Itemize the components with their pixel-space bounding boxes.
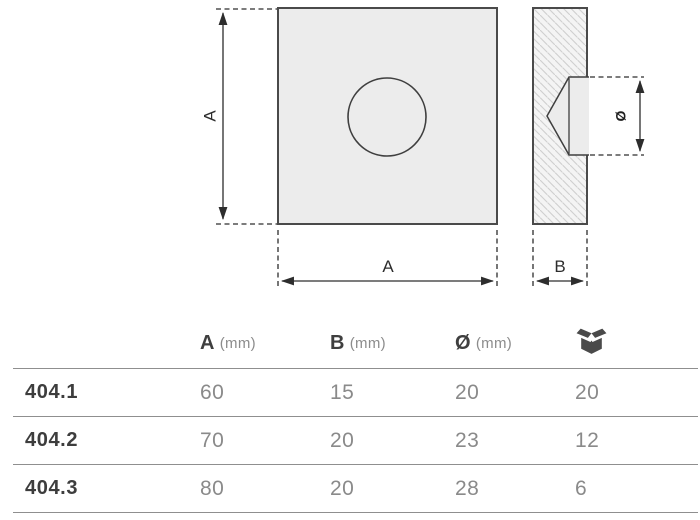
row-model: 404.3	[13, 465, 200, 513]
header-col-diameter: Ø (mm)	[455, 318, 575, 369]
height-label: A	[200, 110, 219, 122]
dimension-thickness-B: B	[533, 230, 587, 287]
dimension-diameter: Ø	[590, 77, 644, 155]
header-col-packaging	[575, 318, 698, 369]
header-col-b: B (mm)	[330, 318, 455, 369]
row-pack-qty: 12	[575, 417, 698, 465]
row-diameter: 20	[455, 369, 575, 417]
row-a-mm: 60	[200, 369, 330, 417]
row-a-mm: 80	[200, 465, 330, 513]
header-model-empty	[13, 318, 200, 369]
col-a-unit: (mm)	[220, 335, 256, 352]
col-b-symbol: B	[330, 332, 345, 355]
row-pack-qty: 20	[575, 369, 698, 417]
col-a-symbol: A	[200, 332, 215, 355]
row-b-mm: 15	[330, 369, 455, 417]
col-diameter-symbol: Ø	[455, 332, 471, 355]
col-diameter-unit: (mm)	[476, 335, 512, 352]
row-model: 404.1	[13, 369, 200, 417]
width-label: A	[382, 257, 394, 276]
row-diameter: 23	[455, 417, 575, 465]
thickness-label: B	[554, 257, 565, 276]
col-b-unit: (mm)	[350, 335, 386, 352]
row-b-mm: 20	[330, 417, 455, 465]
technical-drawing: A A Ø B	[0, 0, 700, 300]
row-pack-qty: 6	[575, 465, 698, 513]
header-col-a: A (mm)	[200, 318, 330, 369]
spec-table: A (mm) B (mm) Ø (mm) 404.1 60 15 20 20 4…	[13, 318, 698, 513]
row-b-mm: 20	[330, 465, 455, 513]
dimension-width-A: A	[278, 230, 497, 287]
diameter-label: Ø	[613, 110, 629, 121]
side-view-section	[533, 8, 589, 224]
row-model: 404.2	[13, 417, 200, 465]
row-a-mm: 70	[200, 417, 330, 465]
open-box-icon	[575, 327, 608, 356]
dimension-height-A: A	[200, 9, 277, 224]
front-view-plate	[278, 8, 497, 224]
row-diameter: 28	[455, 465, 575, 513]
product-datasheet: A A Ø B	[0, 0, 700, 520]
